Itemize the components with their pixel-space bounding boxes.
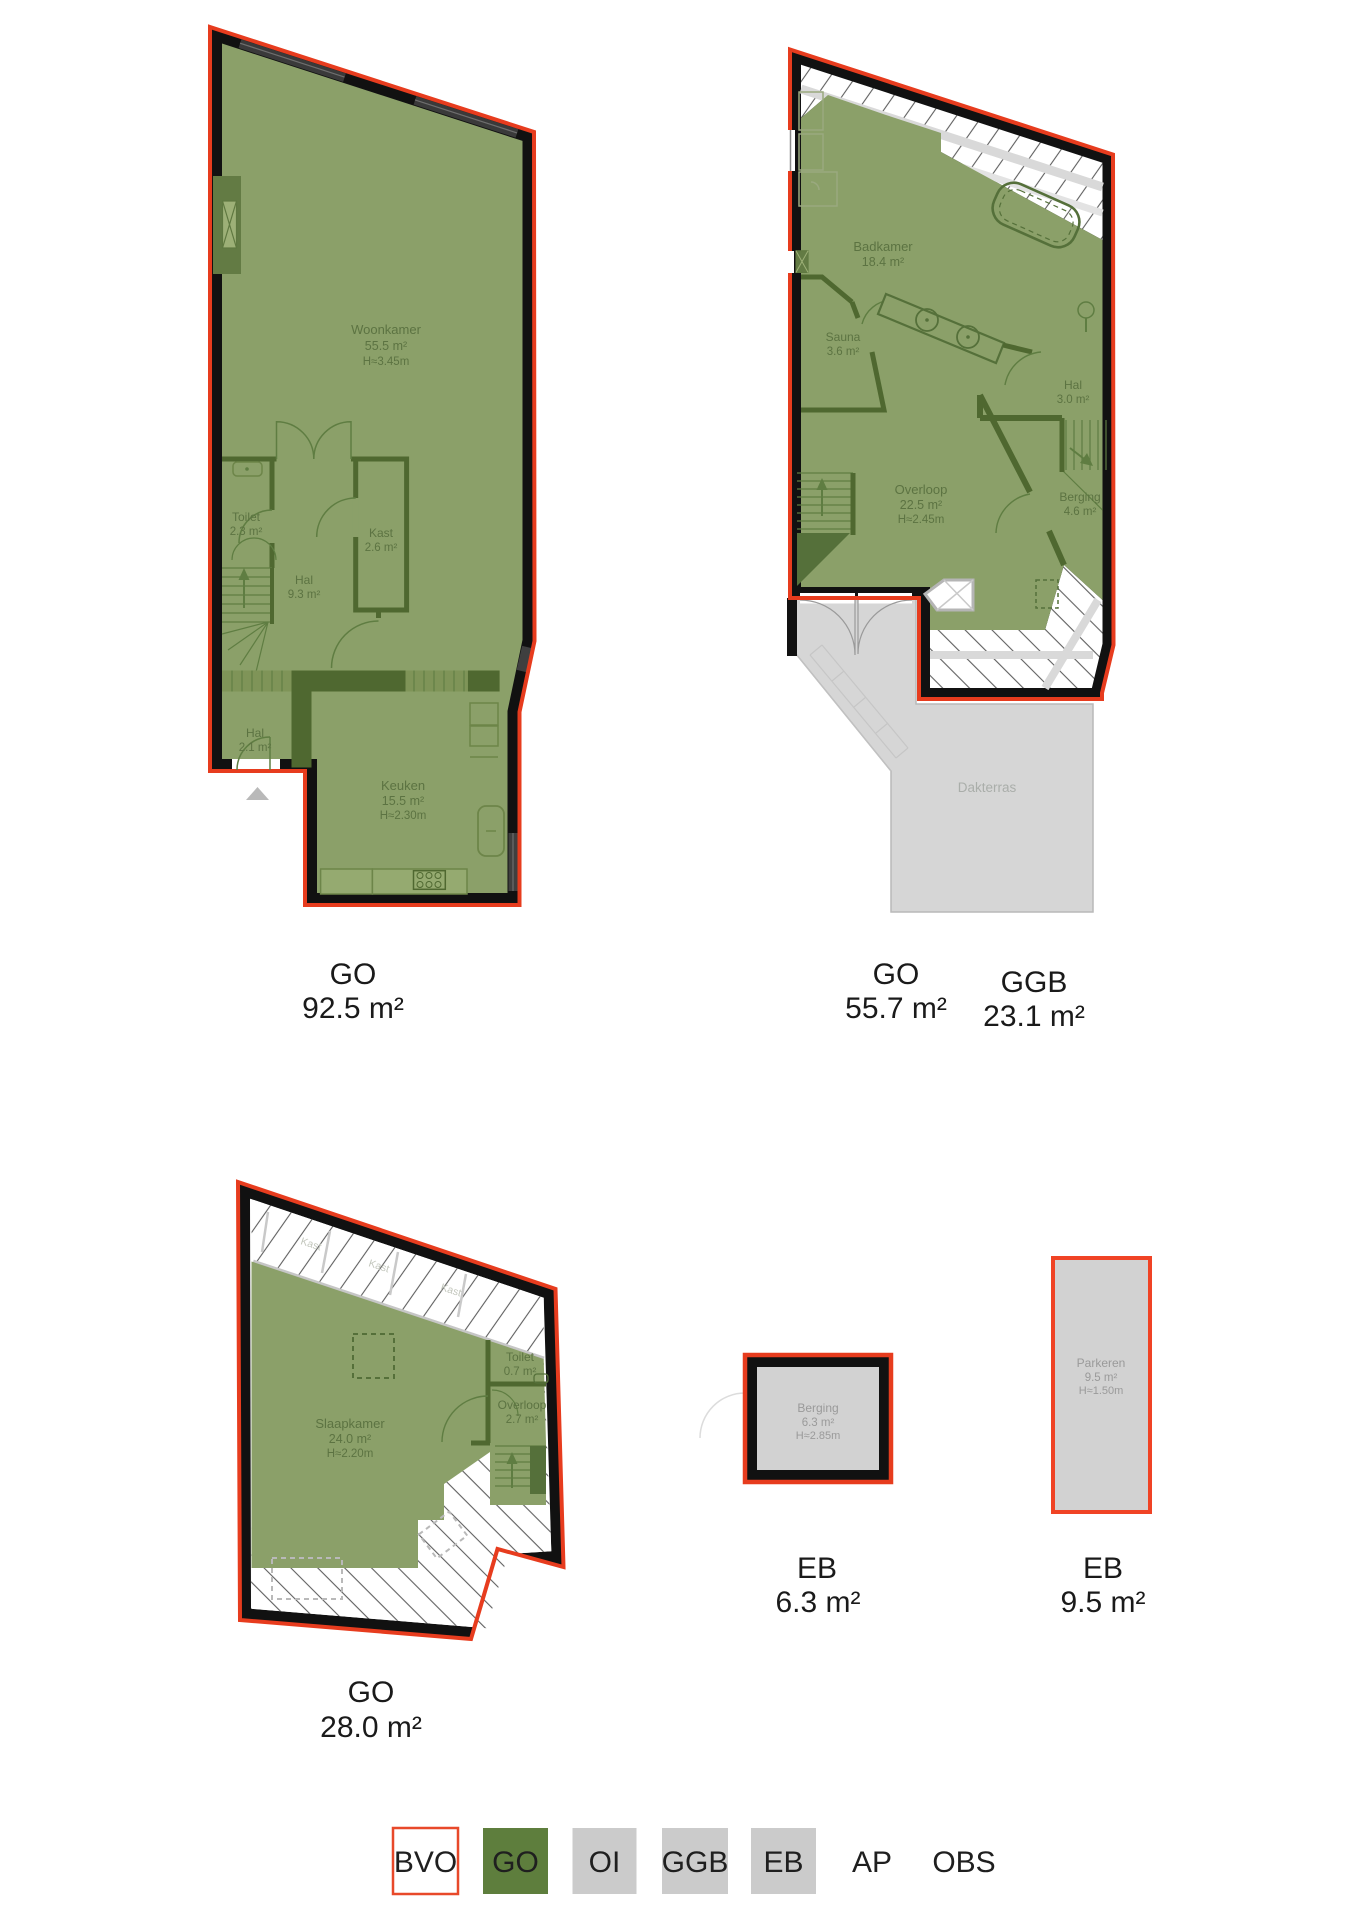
svg-text:Sauna: Sauna <box>826 330 861 344</box>
svg-text:Overloop: Overloop <box>498 1398 547 1412</box>
svg-text:BVO: BVO <box>394 1846 457 1879</box>
svg-text:H≈1.50m: H≈1.50m <box>1079 1385 1124 1397</box>
svg-text:Hal: Hal <box>295 573 313 587</box>
svg-text:Hal: Hal <box>246 726 264 740</box>
svg-text:4.6 m²: 4.6 m² <box>1064 506 1097 518</box>
svg-text:Dakterras: Dakterras <box>958 780 1017 795</box>
svg-text:9.5 m²: 9.5 m² <box>1085 1372 1118 1384</box>
svg-text:GO: GO <box>348 1676 395 1709</box>
svg-text:GO: GO <box>492 1846 539 1879</box>
svg-text:55.7 m²: 55.7 m² <box>845 992 947 1025</box>
svg-text:Kast: Kast <box>369 526 394 540</box>
svg-text:GO: GO <box>873 958 920 991</box>
svg-text:EB: EB <box>797 1552 837 1585</box>
svg-text:2.6 m²: 2.6 m² <box>365 542 398 554</box>
svg-text:Berging: Berging <box>797 1401 838 1415</box>
svg-text:9.3 m²: 9.3 m² <box>288 589 321 601</box>
svg-text:Keuken: Keuken <box>381 778 425 793</box>
svg-text:24.0 m²: 24.0 m² <box>329 1432 371 1446</box>
svg-text:EB: EB <box>763 1846 803 1879</box>
svg-text:15.5 m²: 15.5 m² <box>382 794 424 808</box>
svg-text:Woonkamer: Woonkamer <box>351 322 422 337</box>
svg-text:28.0 m²: 28.0 m² <box>320 1711 422 1744</box>
svg-text:3.6 m²: 3.6 m² <box>827 346 860 358</box>
svg-text:Parkeren: Parkeren <box>1077 1356 1126 1370</box>
svg-text:0.7 m²: 0.7 m² <box>504 1366 537 1378</box>
svg-text:2.7 m²: 2.7 m² <box>506 1414 539 1426</box>
svg-text:6.3 m²: 6.3 m² <box>775 1586 860 1619</box>
svg-text:Toilet: Toilet <box>232 510 261 524</box>
svg-text:OI: OI <box>589 1846 621 1879</box>
svg-text:H≈2.85m: H≈2.85m <box>796 1430 841 1442</box>
svg-text:Badkamer: Badkamer <box>853 239 913 254</box>
svg-text:EB: EB <box>1083 1552 1123 1585</box>
svg-text:OBS: OBS <box>932 1846 995 1879</box>
svg-text:AP: AP <box>852 1846 892 1879</box>
svg-text:Overloop: Overloop <box>895 482 948 497</box>
svg-text:Berging: Berging <box>1059 490 1100 504</box>
svg-text:H≈3.45m: H≈3.45m <box>363 356 410 368</box>
svg-text:2.1 m²: 2.1 m² <box>239 742 272 754</box>
svg-text:22.5 m²: 22.5 m² <box>900 498 942 512</box>
svg-text:GO: GO <box>330 958 377 991</box>
svg-text:2.3 m²: 2.3 m² <box>230 526 263 538</box>
svg-text:Hal: Hal <box>1064 378 1082 392</box>
svg-text:GGB: GGB <box>662 1846 729 1879</box>
svg-text:H≈2.20m: H≈2.20m <box>327 1448 374 1460</box>
svg-text:92.5 m²: 92.5 m² <box>302 992 404 1025</box>
svg-text:55.5 m²: 55.5 m² <box>365 339 407 353</box>
svg-text:GGB: GGB <box>1001 966 1068 999</box>
svg-text:18.4 m²: 18.4 m² <box>862 255 904 269</box>
svg-text:9.5 m²: 9.5 m² <box>1060 1586 1145 1619</box>
svg-text:Slaapkamer: Slaapkamer <box>315 1416 385 1431</box>
svg-text:6.3 m²: 6.3 m² <box>802 1417 835 1429</box>
svg-text:3.0 m²: 3.0 m² <box>1057 394 1090 406</box>
svg-text:Toilet: Toilet <box>506 1350 535 1364</box>
svg-text:H≈2.30m: H≈2.30m <box>380 810 427 822</box>
svg-text:H≈2.45m: H≈2.45m <box>898 514 945 526</box>
svg-text:23.1 m²: 23.1 m² <box>983 1000 1085 1033</box>
